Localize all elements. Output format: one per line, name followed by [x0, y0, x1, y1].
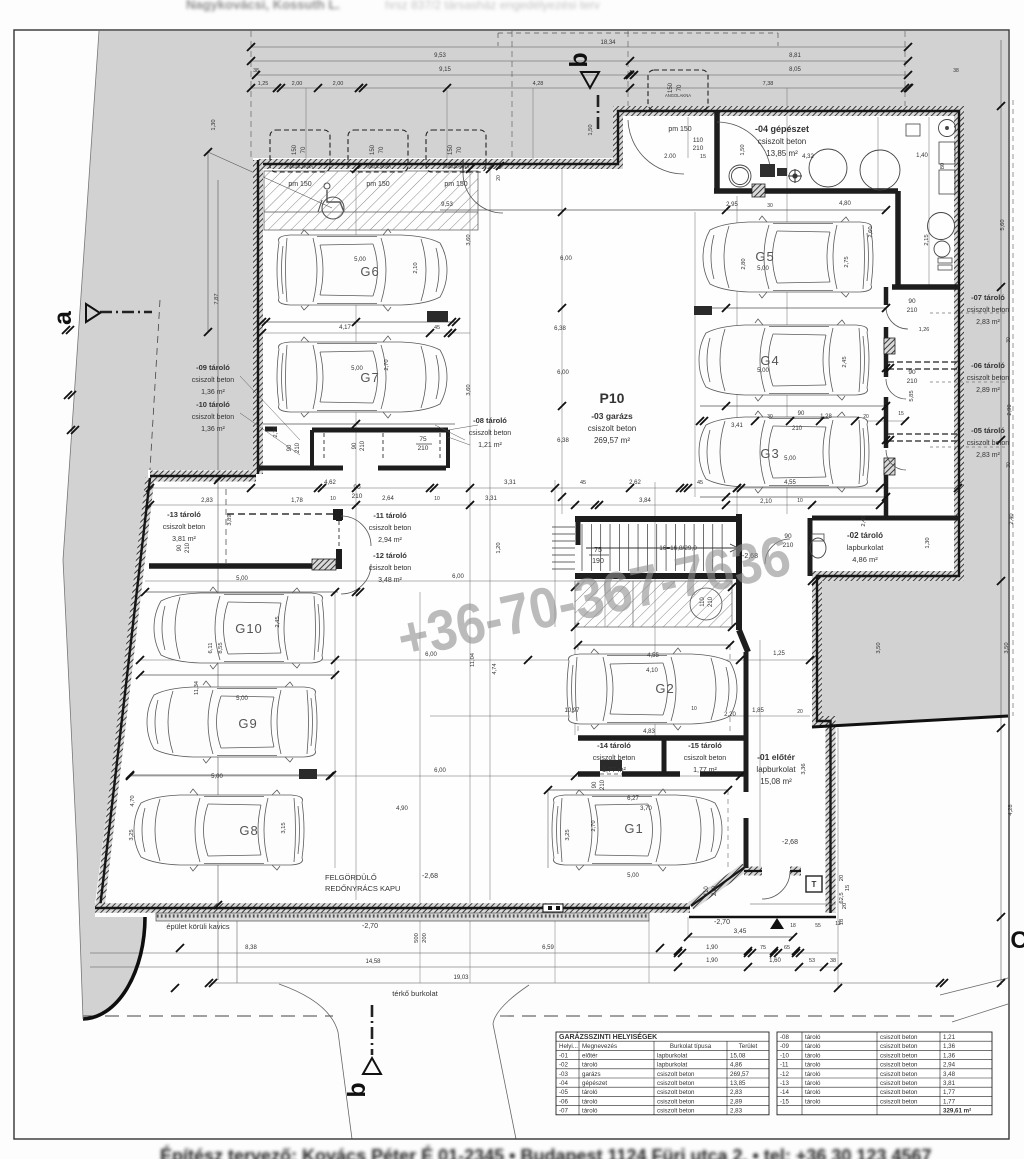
svg-text:75: 75	[760, 945, 766, 951]
svg-text:-09 tároló: -09 tároló	[196, 363, 230, 372]
svg-text:8,38: 8,38	[245, 945, 257, 951]
svg-text:tároló: tároló	[805, 1080, 821, 1087]
svg-text:75: 75	[419, 436, 427, 443]
svg-text:1,77: 1,77	[943, 1089, 956, 1096]
svg-text:4,10: 4,10	[646, 668, 658, 674]
svg-text:-06 tároló: -06 tároló	[971, 361, 1005, 370]
svg-text:2,10: 2,10	[760, 499, 772, 505]
svg-text:15,08 m²: 15,08 m²	[760, 777, 792, 786]
svg-text:38: 38	[953, 68, 959, 74]
svg-text:pm 150: pm 150	[366, 181, 389, 188]
svg-text:20: 20	[496, 175, 502, 181]
svg-text:1,60: 1,60	[769, 958, 781, 964]
svg-text:b: b	[565, 52, 593, 67]
svg-text:lapburkolat: lapburkolat	[756, 765, 796, 774]
svg-text:329,61 m²: 329,61 m²	[943, 1108, 971, 1115]
svg-text:-05: -05	[559, 1089, 569, 1096]
svg-text:5,00: 5,00	[236, 696, 248, 702]
svg-text:csiszolt beton: csiszolt beton	[880, 1062, 918, 1069]
svg-text:3,60: 3,60	[466, 384, 472, 395]
svg-text:-2,68: -2,68	[782, 839, 798, 846]
svg-text:csiszolt beton: csiszolt beton	[758, 137, 806, 146]
svg-text:2,83: 2,83	[201, 498, 213, 504]
svg-text:lapburkolat: lapburkolat	[657, 1062, 688, 1069]
svg-text:csiszolt beton: csiszolt beton	[369, 525, 412, 532]
svg-text:csiszolt beton: csiszolt beton	[880, 1043, 918, 1050]
svg-text:2,83: 2,83	[730, 1089, 743, 1096]
svg-text:2,40: 2,40	[1009, 513, 1015, 524]
svg-text:2,60: 2,60	[868, 226, 874, 237]
svg-text:3,50: 3,50	[876, 642, 882, 653]
svg-text:210: 210	[792, 426, 803, 432]
svg-text:ANGOLAKNA: ANGOLAKNA	[365, 164, 391, 169]
svg-text:-07: -07	[559, 1108, 569, 1115]
svg-text:45: 45	[580, 480, 586, 486]
svg-text:gépészet: gépészet	[582, 1080, 607, 1087]
svg-text:13,85: 13,85	[730, 1080, 746, 1087]
svg-text:3,31: 3,31	[504, 480, 516, 486]
svg-text:4,74: 4,74	[492, 663, 498, 675]
svg-text:-14 tároló: -14 tároló	[597, 741, 631, 750]
svg-text:2,90: 2,90	[1007, 404, 1013, 415]
svg-text:2,89 m²: 2,89 m²	[976, 387, 1000, 394]
svg-text:18: 18	[790, 923, 796, 929]
svg-text:csiszolt beton: csiszolt beton	[163, 524, 206, 531]
svg-text:csiszolt beton: csiszolt beton	[593, 755, 636, 762]
svg-text:4,83: 4,83	[643, 729, 655, 735]
svg-text:tároló: tároló	[805, 1098, 821, 1105]
svg-text:269,57 m²: 269,57 m²	[594, 436, 630, 445]
svg-text:tároló: tároló	[582, 1089, 598, 1096]
svg-text:90: 90	[177, 544, 183, 551]
svg-text:G4: G4	[760, 353, 779, 368]
svg-text:5,00: 5,00	[236, 576, 248, 582]
svg-text:10,97: 10,97	[564, 708, 580, 714]
svg-text:20: 20	[797, 709, 803, 715]
svg-text:tároló: tároló	[805, 1089, 821, 1096]
svg-text:10: 10	[434, 496, 440, 502]
svg-text:2,45: 2,45	[842, 356, 848, 367]
svg-text:14,58: 14,58	[365, 959, 381, 965]
svg-text:18: 18	[839, 919, 845, 925]
svg-text:2,70: 2,70	[591, 820, 597, 831]
svg-text:210: 210	[693, 145, 704, 152]
svg-text:3,70: 3,70	[640, 806, 652, 812]
svg-text:2,89: 2,89	[730, 1098, 743, 1105]
svg-text:csiszolt beton: csiszolt beton	[588, 424, 636, 433]
svg-text:2,40: 2,40	[861, 515, 867, 526]
svg-text:csiszolt beton: csiszolt beton	[684, 755, 727, 762]
svg-text:-08 tároló: -08 tároló	[473, 416, 507, 425]
svg-text:2,83 m²: 2,83 m²	[976, 452, 1000, 459]
svg-text:4,90: 4,90	[396, 806, 408, 812]
svg-text:5,00: 5,00	[354, 257, 366, 263]
svg-text:200: 200	[422, 933, 428, 943]
svg-text:lapburkolat: lapburkolat	[847, 543, 885, 552]
svg-text:tároló: tároló	[805, 1071, 821, 1078]
svg-text:GARÁZSSZINTI HELYISÉGEK: GARÁZSSZINTI HELYISÉGEK	[559, 1032, 657, 1041]
svg-text:90: 90	[908, 369, 916, 376]
svg-text:-04: -04	[559, 1080, 569, 1087]
svg-text:8,05: 8,05	[789, 67, 801, 73]
svg-text:150: 150	[370, 144, 376, 155]
svg-text:2,70: 2,70	[384, 359, 390, 370]
svg-text:Megnevezés: Megnevezés	[582, 1043, 617, 1050]
svg-text:G1: G1	[624, 821, 643, 836]
svg-text:1,50: 1,50	[588, 124, 594, 135]
svg-text:ANGOLAKNA: ANGOLAKNA	[287, 164, 313, 169]
svg-text:G2: G2	[655, 681, 674, 696]
svg-text:-15 tároló: -15 tároló	[688, 741, 722, 750]
svg-text:2,64: 2,64	[382, 496, 394, 502]
svg-text:-2,70: -2,70	[714, 919, 730, 926]
svg-text:G10: G10	[235, 621, 263, 636]
svg-text:20: 20	[842, 903, 848, 909]
svg-text:90: 90	[592, 781, 598, 788]
svg-text:1,20: 1,20	[496, 542, 502, 553]
svg-text:6,27: 6,27	[627, 796, 639, 802]
svg-text:6,00: 6,00	[557, 370, 569, 376]
svg-text:REDŐNYRÁCS KAPU: REDŐNYRÁCS KAPU	[325, 884, 400, 893]
svg-text:4,17: 4,17	[339, 325, 351, 331]
svg-text:T: T	[812, 880, 817, 889]
svg-text:1,36: 1,36	[943, 1052, 956, 1059]
svg-text:-01: -01	[559, 1052, 569, 1059]
svg-text:18,34: 18,34	[600, 40, 616, 46]
svg-text:4,70: 4,70	[130, 795, 136, 806]
svg-text:90: 90	[908, 298, 916, 305]
svg-text:1,90: 1,90	[706, 958, 718, 964]
svg-text:6,11: 6,11	[208, 643, 214, 654]
svg-text:1,25: 1,25	[773, 651, 785, 657]
svg-text:2.00: 2.00	[664, 154, 676, 160]
svg-text:-2,68: -2,68	[422, 873, 438, 880]
svg-text:-2,70: -2,70	[362, 923, 378, 930]
svg-text:csiszolt beton: csiszolt beton	[880, 1080, 918, 1087]
svg-text:4,80: 4,80	[839, 201, 851, 207]
svg-text:3,25: 3,25	[565, 829, 571, 840]
svg-text:150: 150	[448, 144, 454, 155]
svg-text:3,81: 3,81	[943, 1080, 956, 1087]
svg-text:csiszolt beton: csiszolt beton	[192, 377, 235, 384]
svg-text:1,36: 1,36	[943, 1043, 956, 1050]
svg-text:4,28: 4,28	[533, 81, 544, 87]
svg-text:-13: -13	[780, 1080, 790, 1087]
svg-text:csiszolt beton: csiszolt beton	[369, 565, 412, 572]
svg-text:csiszolt beton: csiszolt beton	[657, 1071, 695, 1078]
svg-text:P10: P10	[600, 390, 625, 406]
svg-text:3,81 m²: 3,81 m²	[172, 536, 196, 543]
svg-text:2,00: 2,00	[333, 81, 344, 87]
svg-text:3,31: 3,31	[485, 496, 497, 502]
svg-text:6,38: 6,38	[557, 438, 569, 444]
svg-text:11,34: 11,34	[194, 680, 200, 695]
svg-text:15: 15	[898, 411, 904, 417]
svg-text:Burkolat típusa: Burkolat típusa	[670, 1043, 712, 1050]
svg-text:210: 210	[295, 442, 301, 453]
svg-text:1,50: 1,50	[740, 144, 746, 155]
svg-text:C: C	[1010, 927, 1024, 954]
svg-text:épület körüli kavics: épület körüli kavics	[166, 922, 230, 931]
svg-text:6,00: 6,00	[560, 256, 572, 262]
svg-text:7,87: 7,87	[214, 293, 220, 304]
svg-text:210: 210	[907, 378, 918, 385]
svg-text:-08: -08	[780, 1034, 790, 1041]
svg-text:1,25: 1,25	[258, 81, 269, 87]
svg-text:10: 10	[691, 706, 697, 712]
svg-text:6,00: 6,00	[434, 768, 446, 774]
svg-text:30: 30	[767, 203, 773, 209]
svg-text:30: 30	[767, 414, 773, 420]
svg-text:1,40: 1,40	[916, 153, 928, 159]
svg-text:-10: -10	[780, 1052, 790, 1059]
svg-text:70: 70	[677, 84, 683, 91]
svg-text:2,83 m²: 2,83 m²	[976, 319, 1000, 326]
svg-text:7,38: 7,38	[763, 81, 774, 87]
svg-text:-06: -06	[559, 1098, 569, 1105]
svg-text:tároló: tároló	[582, 1062, 598, 1069]
svg-text:45: 45	[434, 325, 440, 331]
svg-text:csiszolt beton: csiszolt beton	[967, 440, 1010, 447]
svg-text:10: 10	[797, 498, 803, 504]
svg-text:62,5: 62,5	[839, 892, 845, 903]
svg-text:pm 150: pm 150	[288, 181, 311, 188]
svg-text:-11 tároló: -11 tároló	[373, 511, 407, 520]
svg-text:110: 110	[693, 137, 704, 144]
svg-text:9,15: 9,15	[439, 67, 451, 73]
svg-text:15: 15	[845, 885, 851, 891]
svg-text:1,21 m²: 1,21 m²	[478, 442, 502, 449]
svg-text:tároló: tároló	[582, 1098, 598, 1105]
svg-text:1,85: 1,85	[752, 708, 764, 714]
svg-text:-11: -11	[780, 1062, 789, 1069]
svg-text:2,80: 2,80	[741, 258, 747, 269]
svg-text:csiszolt beton: csiszolt beton	[657, 1098, 695, 1105]
svg-text:6,00: 6,00	[452, 574, 464, 580]
svg-text:hrsz 837/2 társasház engedélye: hrsz 837/2 társasház engedélyezési terv	[385, 0, 600, 12]
svg-text:b: b	[343, 1082, 371, 1097]
svg-text:csiszolt beton: csiszolt beton	[880, 1089, 918, 1096]
svg-text:1,30: 1,30	[925, 537, 931, 548]
svg-text:garázs: garázs	[582, 1071, 601, 1078]
svg-text:3,84: 3,84	[639, 498, 651, 504]
svg-text:2,15: 2,15	[924, 234, 930, 245]
svg-text:-01 előtér: -01 előtér	[757, 752, 795, 762]
svg-text:75: 75	[594, 547, 602, 554]
svg-text:210: 210	[712, 885, 718, 896]
svg-text:210: 210	[907, 307, 918, 314]
svg-text:5,85: 5,85	[909, 390, 915, 401]
svg-text:55: 55	[815, 923, 821, 929]
svg-text:20: 20	[839, 875, 845, 881]
svg-text:G8: G8	[239, 823, 258, 838]
svg-text:2,45: 2,45	[275, 616, 281, 627]
svg-text:csiszolt beton: csiszolt beton	[469, 430, 512, 437]
svg-text:2,94 m²: 2,94 m²	[378, 537, 402, 544]
svg-text:1,77 m²: 1,77 m²	[693, 767, 717, 774]
svg-text:3,48 m²: 3,48 m²	[378, 577, 402, 584]
svg-text:-02 tároló: -02 tároló	[847, 531, 883, 540]
svg-text:G6: G6	[360, 264, 379, 279]
svg-text:5,00: 5,00	[784, 456, 796, 462]
svg-text:210: 210	[600, 779, 606, 790]
svg-text:5,00: 5,00	[211, 774, 223, 780]
svg-text:-12: -12	[780, 1071, 790, 1078]
svg-text:pm 150: pm 150	[444, 181, 467, 188]
svg-text:13,85 m²: 13,85 m²	[766, 149, 798, 158]
svg-text:5,00: 5,00	[757, 368, 769, 374]
svg-text:210: 210	[352, 493, 363, 500]
svg-text:Terület: Terület	[739, 1043, 758, 1050]
svg-text:6,59: 6,59	[542, 945, 554, 951]
svg-text:pm 150: pm 150	[668, 126, 691, 133]
svg-text:150: 150	[292, 144, 298, 155]
svg-text:5,60: 5,60	[1000, 219, 1006, 230]
svg-text:-02: -02	[559, 1062, 569, 1069]
svg-text:-15: -15	[780, 1098, 790, 1105]
svg-text:előtér: előtér	[582, 1052, 597, 1059]
svg-text:210: 210	[418, 445, 429, 452]
svg-text:70: 70	[379, 146, 385, 153]
svg-text:20: 20	[863, 414, 869, 420]
svg-text:Építész tervező: Kovács Péter: Építész tervező: Kovács Péter É 01-2345 …	[160, 1145, 932, 1159]
svg-text:8,55: 8,55	[218, 642, 224, 653]
svg-text:csiszolt beton: csiszolt beton	[880, 1034, 918, 1041]
svg-text:tároló: tároló	[805, 1062, 821, 1069]
svg-text:-09: -09	[780, 1043, 790, 1050]
svg-text:1,36 m²: 1,36 m²	[201, 389, 225, 396]
svg-text:2,70: 2,70	[273, 426, 279, 437]
svg-text:2,75: 2,75	[844, 256, 850, 267]
svg-text:45: 45	[697, 480, 703, 486]
svg-text:269,57: 269,57	[730, 1071, 749, 1078]
svg-text:G3: G3	[760, 446, 779, 461]
svg-text:70: 70	[457, 146, 463, 153]
svg-text:csiszolt beton: csiszolt beton	[192, 414, 235, 421]
svg-text:38: 38	[830, 958, 836, 964]
svg-text:3,41: 3,41	[731, 423, 743, 429]
svg-text:80: 80	[940, 163, 946, 169]
svg-text:-13 tároló: -13 tároló	[167, 510, 201, 519]
svg-text:2,00: 2,00	[292, 81, 303, 87]
svg-text:-14: -14	[780, 1089, 790, 1096]
svg-text:Nagykovácsi, Kossuth L.: Nagykovácsi, Kossuth L.	[186, 0, 340, 12]
svg-text:-10 tároló: -10 tároló	[196, 400, 230, 409]
svg-text:3,15: 3,15	[281, 822, 287, 833]
svg-text:csiszolt beton: csiszolt beton	[657, 1089, 695, 1096]
svg-text:3,60: 3,60	[466, 234, 472, 245]
svg-text:3,89: 3,89	[227, 514, 233, 525]
svg-text:csiszolt beton: csiszolt beton	[880, 1052, 918, 1059]
svg-text:19,03: 19,03	[453, 975, 469, 981]
svg-text:65: 65	[784, 945, 790, 951]
svg-text:5,00: 5,00	[627, 873, 639, 879]
svg-text:tároló: tároló	[805, 1043, 821, 1050]
svg-text:lapburkolat: lapburkolat	[657, 1052, 688, 1059]
svg-text:90: 90	[798, 411, 805, 417]
svg-text:1,77 m²: 1,77 m²	[602, 767, 626, 774]
svg-text:15,08: 15,08	[730, 1052, 746, 1059]
svg-text:90: 90	[352, 442, 358, 449]
svg-text:csiszolt beton: csiszolt beton	[880, 1098, 918, 1105]
svg-text:térkő burkolat: térkő burkolat	[392, 989, 438, 998]
svg-text:3,25: 3,25	[129, 829, 135, 840]
svg-text:3,45: 3,45	[734, 928, 747, 935]
svg-text:-04 gépészet: -04 gépészet	[755, 124, 809, 134]
svg-text:1,36 m²: 1,36 m²	[201, 426, 225, 433]
svg-text:csiszolt beton: csiszolt beton	[880, 1071, 918, 1078]
svg-text:4,55: 4,55	[647, 653, 659, 659]
svg-text:csiszolt beton: csiszolt beton	[657, 1108, 695, 1115]
svg-text:Helyi...: Helyi...	[559, 1043, 578, 1050]
svg-text:5,00: 5,00	[351, 366, 363, 372]
svg-text:2,62: 2,62	[629, 480, 641, 486]
svg-text:53: 53	[809, 958, 815, 964]
svg-text:9,53: 9,53	[441, 202, 453, 208]
svg-text:2,94: 2,94	[943, 1062, 956, 1069]
svg-text:10: 10	[330, 496, 336, 502]
svg-text:tároló: tároló	[582, 1108, 598, 1115]
svg-text:FELGÖRDÜLŐ: FELGÖRDÜLŐ	[325, 873, 377, 882]
svg-text:4,86 m²: 4,86 m²	[852, 555, 878, 564]
svg-text:tároló: tároló	[805, 1052, 821, 1059]
svg-text:csiszolt beton: csiszolt beton	[657, 1080, 695, 1087]
svg-text:G9: G9	[238, 716, 257, 731]
svg-text:500: 500	[414, 933, 420, 943]
svg-text:-03 garázs: -03 garázs	[591, 411, 633, 421]
svg-text:2,10: 2,10	[413, 262, 419, 273]
svg-text:2,83: 2,83	[730, 1108, 743, 1115]
svg-text:70: 70	[301, 146, 307, 153]
svg-text:9,53: 9,53	[434, 53, 446, 59]
svg-text:G5: G5	[755, 249, 774, 264]
svg-text:90: 90	[287, 444, 293, 451]
svg-text:1,21: 1,21	[943, 1034, 956, 1041]
svg-text:2,20: 2,20	[724, 712, 736, 718]
svg-text:-03: -03	[559, 1071, 569, 1078]
svg-text:ANGOLAKNA: ANGOLAKNA	[443, 164, 469, 169]
svg-text:1,78: 1,78	[291, 498, 303, 504]
svg-text:3,48: 3,48	[943, 1071, 956, 1078]
svg-text:110: 110	[704, 886, 710, 896]
svg-text:-05 tároló: -05 tároló	[971, 426, 1005, 435]
svg-text:3,36: 3,36	[801, 763, 807, 774]
svg-text:4,32: 4,32	[802, 154, 814, 160]
svg-text:6,38: 6,38	[554, 326, 566, 332]
svg-text:210: 210	[185, 542, 191, 553]
svg-text:1,26: 1,26	[919, 327, 930, 333]
svg-text:5,00: 5,00	[757, 266, 769, 272]
svg-text:-12 tároló: -12 tároló	[373, 551, 407, 560]
svg-text:8,81: 8,81	[789, 53, 801, 59]
svg-text:4,55: 4,55	[784, 480, 796, 486]
svg-text:1,77: 1,77	[943, 1098, 956, 1105]
svg-text:210: 210	[360, 440, 366, 451]
svg-text:a: a	[49, 310, 77, 325]
svg-text:15: 15	[700, 154, 706, 160]
svg-text:-07 tároló: -07 tároló	[971, 293, 1005, 302]
svg-text:tároló: tároló	[805, 1034, 821, 1041]
svg-text:1,90: 1,90	[706, 945, 718, 951]
svg-text:4,86: 4,86	[730, 1062, 743, 1069]
svg-text:G7: G7	[360, 370, 379, 385]
svg-text:csiszolt beton: csiszolt beton	[967, 375, 1010, 382]
svg-text:1,30: 1,30	[211, 119, 217, 130]
svg-text:150: 150	[668, 82, 674, 93]
